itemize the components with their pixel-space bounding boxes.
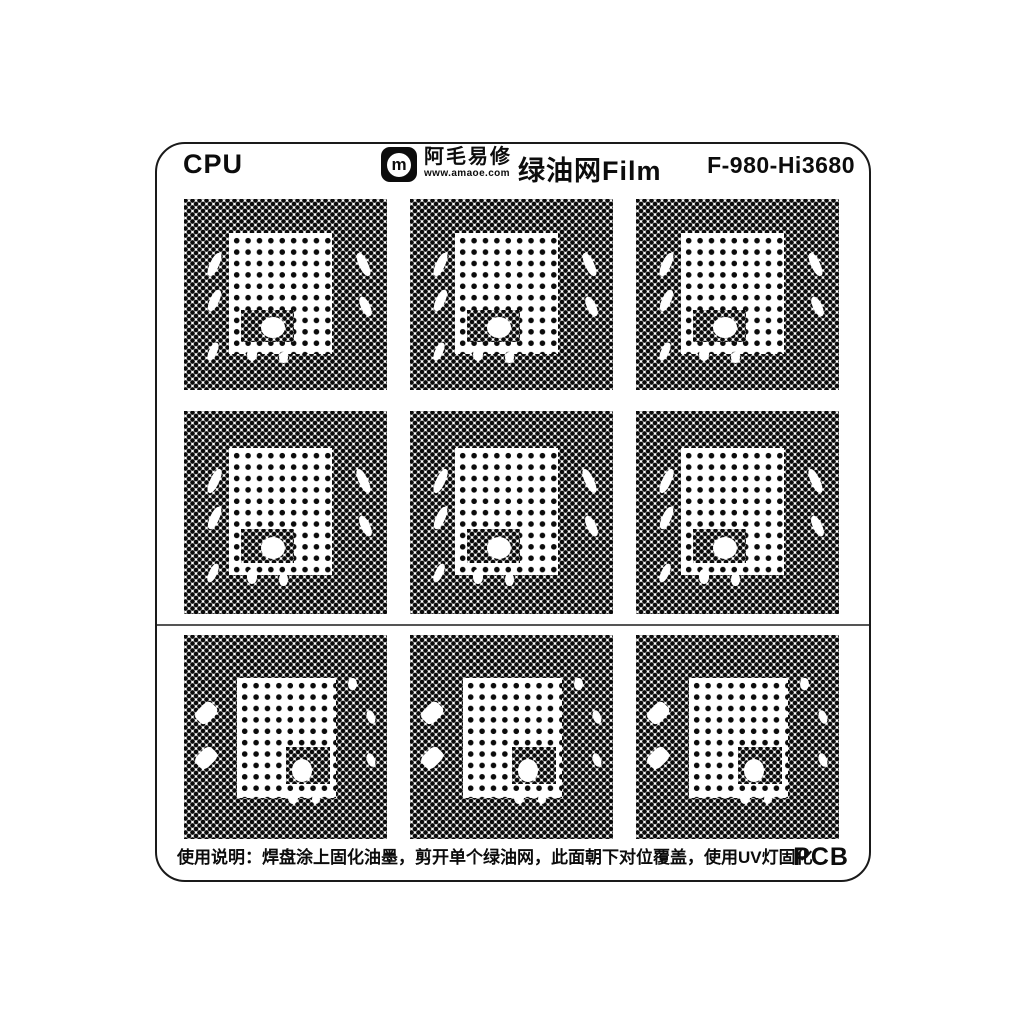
keepout-blob	[348, 678, 356, 690]
keepout-blob	[431, 467, 450, 495]
keepout-blob	[808, 514, 826, 538]
keepout-blob	[590, 710, 602, 726]
keepout-blob	[279, 352, 287, 363]
keepout-blob	[800, 678, 808, 690]
usage-instructions: 使用说明：焊盘涂上固化油墨，剪开单个绿油网，此面朝下对位覆盖，使用UV灯固化	[177, 843, 779, 868]
stencil-row-3	[184, 635, 839, 839]
keepout-blob	[356, 514, 374, 538]
keepout-blob	[658, 506, 677, 532]
keepout-blob	[764, 794, 772, 804]
stencil-row-2	[184, 411, 839, 614]
stencil-tile	[636, 411, 839, 614]
logo-m-glyph: m	[387, 153, 411, 177]
stencil-row-1	[184, 199, 839, 390]
keepout-blob	[645, 745, 672, 772]
stencil-sheet-image: CPU m 阿毛易修 www.amaoe.com 绿油网Film F-980-H…	[0, 0, 1024, 1024]
keepout-blob	[699, 348, 709, 361]
keepout-blob	[353, 467, 372, 495]
pcb-label: PCB	[793, 843, 849, 872]
keepout-blob	[816, 710, 828, 726]
keepout-blob	[279, 573, 287, 585]
keepout-blob	[580, 252, 599, 278]
keepout-blob	[583, 295, 600, 318]
keepout-blob	[288, 792, 298, 804]
keepout-blob	[805, 467, 824, 495]
keepout-blob	[806, 252, 825, 278]
stencil-tile	[410, 635, 613, 839]
brand-text: 阿毛易修 www.amaoe.com	[424, 147, 512, 179]
brand-logo-group: m 阿毛易修 www.amaoe.com	[381, 147, 512, 182]
keepout-blob	[419, 700, 446, 727]
keepout-blob	[247, 569, 257, 583]
keepout-blob	[364, 710, 376, 726]
keepout-blob	[582, 514, 600, 538]
keepout-blob	[431, 562, 447, 584]
product-title: 绿油网Film	[518, 149, 662, 188]
keepout-blob	[206, 341, 221, 362]
keepout-blob	[657, 467, 676, 495]
brand-url: www.amaoe.com	[424, 168, 510, 179]
keepout-blob	[574, 678, 582, 690]
keepout-blob	[473, 569, 483, 583]
keepout-blob	[505, 573, 513, 585]
keepout-blob	[658, 252, 677, 278]
keepout-blob	[205, 467, 224, 495]
amaoe-logo-icon: m	[381, 147, 417, 182]
keepout-blob	[505, 352, 513, 363]
keepout-blob	[247, 348, 257, 361]
keepout-blob	[364, 752, 376, 768]
model-number: F-980-Hi3680	[707, 152, 855, 179]
keepout-blob	[205, 562, 221, 584]
stencil-tile	[410, 411, 613, 614]
stencil-tile	[410, 199, 613, 390]
keepout-blob	[645, 700, 672, 727]
brand-name: 阿毛易修	[424, 147, 512, 168]
stencil-tile	[636, 635, 839, 839]
keepout-blob	[419, 745, 446, 772]
keepout-blob	[816, 752, 828, 768]
keepout-blob	[432, 341, 447, 362]
cut-divider-line	[157, 624, 869, 626]
keepout-blob	[590, 752, 602, 768]
keepout-blob	[731, 352, 739, 363]
cpu-label: CPU	[183, 149, 243, 180]
keepout-blob	[206, 506, 225, 532]
keepout-blob	[312, 794, 320, 804]
stencil-tile	[184, 635, 387, 839]
keepout-blob	[538, 794, 546, 804]
keepout-blob	[357, 295, 374, 318]
keepout-blob	[809, 295, 826, 318]
keepout-blob	[514, 792, 524, 804]
stencil-tile	[636, 199, 839, 390]
stencil-tile	[184, 411, 387, 614]
keepout-blob	[658, 288, 676, 313]
keepout-blob	[579, 467, 598, 495]
keepout-blob	[731, 573, 739, 585]
keepout-blob	[193, 700, 220, 727]
stencil-tile	[184, 199, 387, 390]
keepout-blob	[432, 252, 451, 278]
keepout-blob	[658, 341, 673, 362]
keepout-blob	[657, 562, 673, 584]
keepout-blob	[432, 288, 450, 313]
keepout-blob	[206, 288, 224, 313]
keepout-blob	[193, 745, 220, 772]
keepout-blob	[473, 348, 483, 361]
stencil-card: CPU m 阿毛易修 www.amaoe.com 绿油网Film F-980-H…	[155, 142, 871, 882]
keepout-blob	[354, 252, 373, 278]
keepout-blob	[699, 569, 709, 583]
keepout-blob	[432, 506, 451, 532]
keepout-blob	[206, 252, 225, 278]
keepout-blob	[740, 792, 750, 804]
